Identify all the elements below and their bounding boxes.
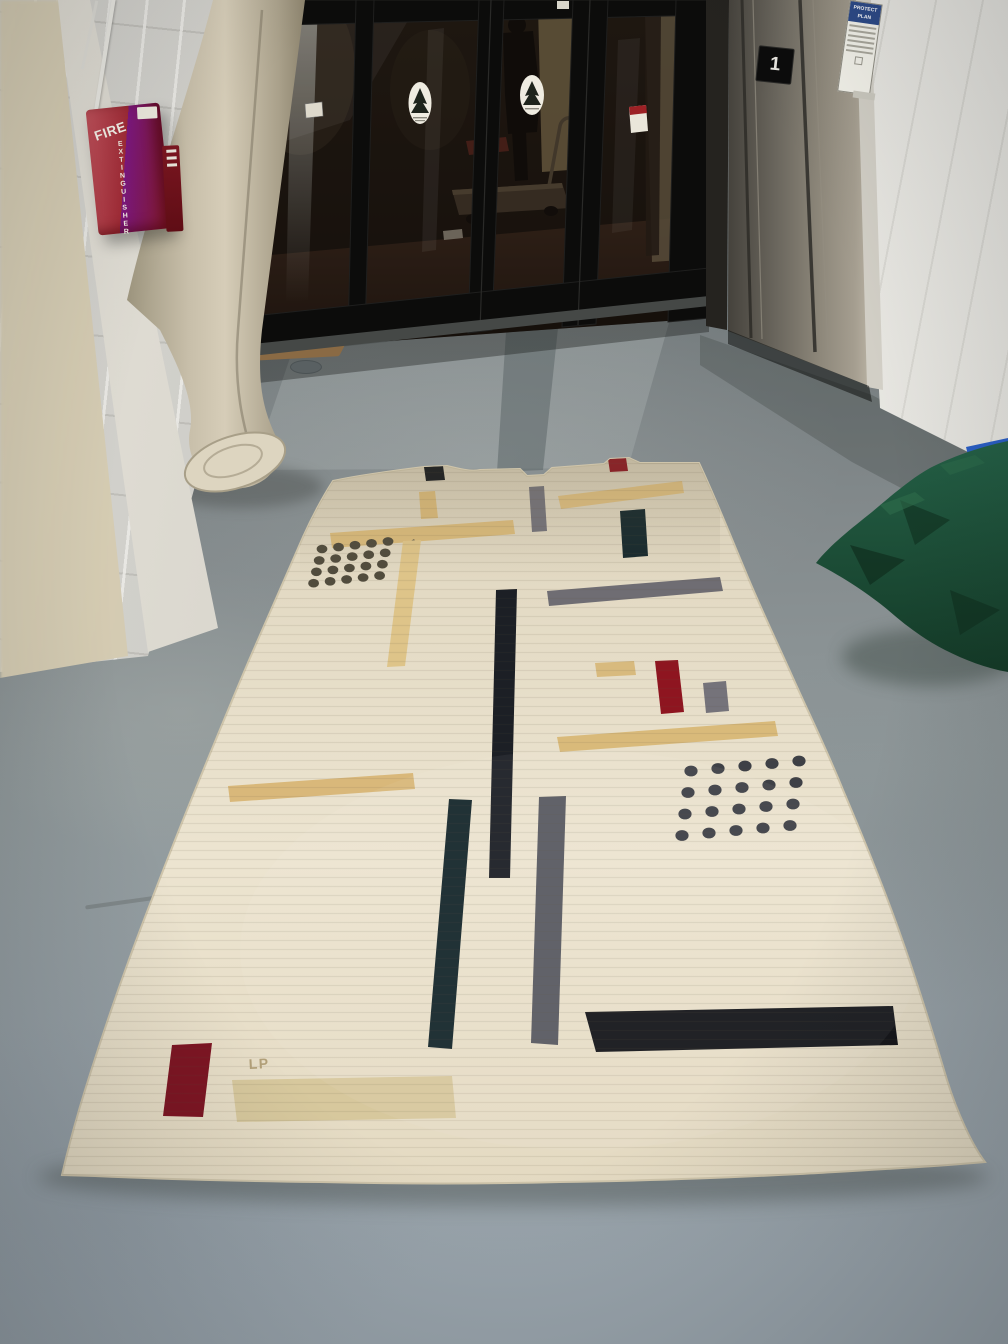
photo-vignette xyxy=(0,0,1008,1344)
warehouse-hallway-photo: LP FIRE EXTINGUISHER 1 PROTECT xyxy=(0,0,1008,1344)
